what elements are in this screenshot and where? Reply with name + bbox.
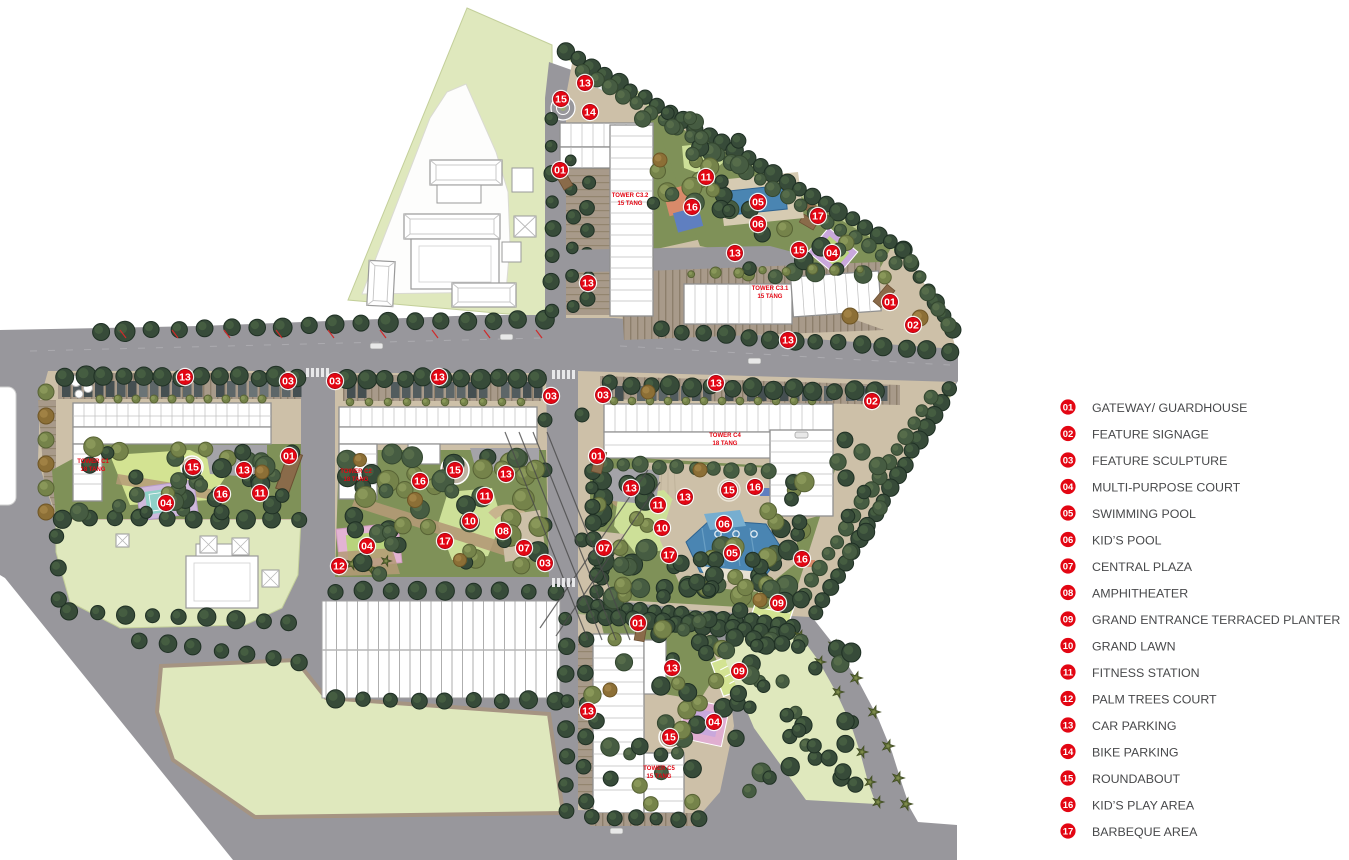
svg-text:GATEWAY/ GUARDHOUSE: GATEWAY/ GUARDHOUSE xyxy=(1092,401,1247,415)
svg-text:10: 10 xyxy=(656,522,668,534)
svg-text:08: 08 xyxy=(497,525,509,537)
svg-text:ROUNDABOUT: ROUNDABOUT xyxy=(1092,772,1181,786)
svg-text:16: 16 xyxy=(686,201,698,213)
svg-text:05: 05 xyxy=(1063,508,1074,519)
svg-text:BARBEQUE AREA: BARBEQUE AREA xyxy=(1092,825,1198,839)
svg-text:15 TANG: 15 TANG xyxy=(647,774,672,780)
svg-text:16: 16 xyxy=(749,481,761,493)
svg-text:12: 12 xyxy=(333,560,345,572)
svg-text:18 TANG: 18 TANG xyxy=(713,441,738,447)
svg-text:15: 15 xyxy=(449,464,461,476)
svg-text:13: 13 xyxy=(666,662,678,674)
svg-text:03: 03 xyxy=(329,375,341,387)
svg-text:TOWER C2: TOWER C2 xyxy=(340,469,372,475)
svg-text:01: 01 xyxy=(632,617,644,629)
svg-text:04: 04 xyxy=(826,247,838,259)
svg-text:06: 06 xyxy=(1063,535,1074,546)
svg-text:01: 01 xyxy=(591,450,603,462)
svg-text:TOWER C3.1: TOWER C3.1 xyxy=(752,286,789,292)
svg-text:TOWER C3.2: TOWER C3.2 xyxy=(612,193,649,199)
svg-text:15: 15 xyxy=(723,484,735,496)
svg-text:02: 02 xyxy=(866,395,878,407)
svg-text:01: 01 xyxy=(884,296,896,308)
svg-text:TOWER C5: TOWER C5 xyxy=(643,766,675,772)
svg-text:14: 14 xyxy=(1063,747,1074,758)
svg-text:13: 13 xyxy=(579,77,591,89)
svg-text:15: 15 xyxy=(664,731,676,743)
svg-text:17: 17 xyxy=(1063,826,1074,837)
svg-text:11: 11 xyxy=(479,490,490,502)
svg-text:01: 01 xyxy=(554,164,566,176)
svg-text:16: 16 xyxy=(1063,800,1074,811)
svg-text:05: 05 xyxy=(752,196,764,208)
svg-text:09: 09 xyxy=(733,665,745,677)
svg-text:13: 13 xyxy=(1063,720,1074,731)
svg-text:04: 04 xyxy=(160,497,172,509)
svg-text:15 TANG: 15 TANG xyxy=(758,294,783,300)
svg-text:13: 13 xyxy=(500,468,512,480)
svg-text:KID’S POOL: KID’S POOL xyxy=(1092,534,1162,548)
svg-text:18 TANG: 18 TANG xyxy=(344,477,369,483)
svg-text:10: 10 xyxy=(464,515,476,527)
svg-text:11: 11 xyxy=(652,499,663,511)
svg-text:13: 13 xyxy=(625,482,637,494)
svg-text:15 TANG: 15 TANG xyxy=(618,201,643,207)
svg-text:TOWER C1: TOWER C1 xyxy=(77,459,109,465)
svg-text:08: 08 xyxy=(1063,588,1074,599)
svg-text:17: 17 xyxy=(439,535,451,547)
svg-text:KID’S PLAY AREA: KID’S PLAY AREA xyxy=(1092,799,1195,813)
svg-text:CAR PARKING: CAR PARKING xyxy=(1092,719,1176,733)
svg-text:13: 13 xyxy=(582,705,594,717)
svg-text:09: 09 xyxy=(772,597,784,609)
svg-text:15: 15 xyxy=(555,93,567,105)
svg-text:14: 14 xyxy=(584,106,596,118)
svg-text:16: 16 xyxy=(414,475,426,487)
svg-text:FEATURE SIGNAGE: FEATURE SIGNAGE xyxy=(1092,428,1209,442)
svg-text:16: 16 xyxy=(216,488,228,500)
svg-text:11: 11 xyxy=(1063,667,1074,678)
svg-text:01: 01 xyxy=(283,450,295,462)
svg-text:16: 16 xyxy=(796,553,808,565)
svg-text:06: 06 xyxy=(718,518,730,530)
svg-text:12: 12 xyxy=(1063,694,1074,705)
svg-text:06: 06 xyxy=(752,218,764,230)
svg-text:15: 15 xyxy=(187,461,199,473)
svg-text:CENTRAL PLAZA: CENTRAL PLAZA xyxy=(1092,560,1193,574)
svg-text:13: 13 xyxy=(710,377,722,389)
svg-text:03: 03 xyxy=(1063,455,1074,466)
svg-text:07: 07 xyxy=(1063,561,1074,572)
svg-text:13: 13 xyxy=(582,277,594,289)
svg-text:13: 13 xyxy=(179,371,191,383)
svg-text:03: 03 xyxy=(545,390,557,402)
svg-text:11: 11 xyxy=(700,171,711,183)
svg-text:03: 03 xyxy=(539,557,551,569)
svg-text:BIKE PARKING: BIKE PARKING xyxy=(1092,746,1179,760)
svg-text:15: 15 xyxy=(1063,773,1074,784)
svg-text:05: 05 xyxy=(726,547,738,559)
svg-text:13: 13 xyxy=(729,247,741,259)
svg-text:09: 09 xyxy=(1063,614,1074,625)
svg-text:01: 01 xyxy=(1063,402,1074,413)
svg-text:13: 13 xyxy=(433,371,445,383)
svg-text:FITNESS STATION: FITNESS STATION xyxy=(1092,666,1200,680)
svg-text:17: 17 xyxy=(812,210,824,222)
svg-text:11: 11 xyxy=(254,487,265,499)
svg-text:17: 17 xyxy=(663,549,675,561)
svg-text:03: 03 xyxy=(282,375,294,387)
svg-text:10: 10 xyxy=(1063,641,1074,652)
svg-text:18 TANG: 18 TANG xyxy=(81,467,106,473)
svg-text:13: 13 xyxy=(782,334,794,346)
svg-text:03: 03 xyxy=(597,389,609,401)
svg-text:GRAND LAWN: GRAND LAWN xyxy=(1092,640,1176,654)
svg-text:04: 04 xyxy=(361,540,373,552)
svg-text:FEATURE SCULPTURE: FEATURE SCULPTURE xyxy=(1092,454,1227,468)
svg-text:04: 04 xyxy=(1063,482,1074,493)
svg-text:07: 07 xyxy=(518,542,530,554)
svg-text:04: 04 xyxy=(708,716,720,728)
svg-text:MULTI-PURPOSE COURT: MULTI-PURPOSE COURT xyxy=(1092,481,1241,495)
svg-text:AMPHITHEATER: AMPHITHEATER xyxy=(1092,587,1188,601)
svg-text:02: 02 xyxy=(1063,429,1074,440)
svg-text:GRAND ENTRANCE TERRACED PLANTE: GRAND ENTRANCE TERRACED PLANTER xyxy=(1092,613,1340,627)
svg-text:SWIMMING POOL: SWIMMING POOL xyxy=(1092,507,1196,521)
svg-text:TOWER C4: TOWER C4 xyxy=(709,433,741,439)
svg-text:02: 02 xyxy=(907,319,919,331)
svg-text:15: 15 xyxy=(793,244,805,256)
svg-text:PALM TREES COURT: PALM TREES COURT xyxy=(1092,693,1217,707)
svg-text:13: 13 xyxy=(679,491,691,503)
svg-text:07: 07 xyxy=(598,542,610,554)
svg-text:13: 13 xyxy=(238,464,250,476)
